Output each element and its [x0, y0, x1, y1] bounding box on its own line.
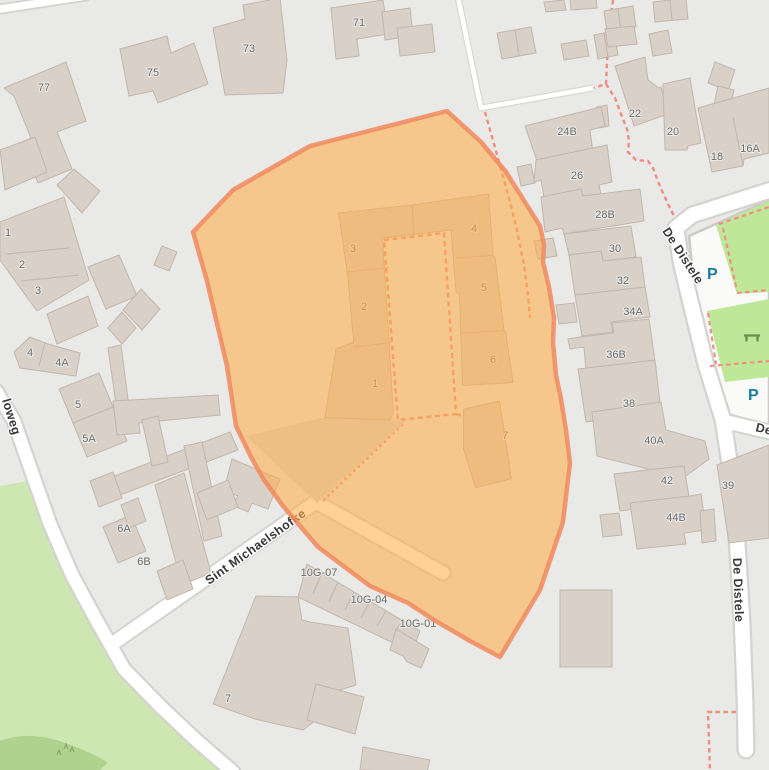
svg-text:20: 20 — [667, 126, 679, 138]
svg-text:3: 3 — [35, 285, 41, 297]
svg-text:10G-04: 10G-04 — [351, 594, 388, 606]
svg-text:6A: 6A — [117, 523, 131, 535]
svg-text:6B: 6B — [137, 556, 150, 568]
svg-text:75: 75 — [147, 67, 159, 79]
svg-text:73: 73 — [243, 43, 255, 55]
svg-text:18: 18 — [711, 151, 723, 163]
svg-text:P: P — [707, 266, 718, 283]
svg-text:22: 22 — [629, 108, 641, 120]
svg-text:39: 39 — [722, 480, 734, 492]
svg-text:24B: 24B — [557, 126, 577, 138]
svg-text:4: 4 — [27, 347, 33, 359]
svg-text:2: 2 — [19, 259, 25, 271]
svg-text:1: 1 — [5, 227, 11, 239]
svg-text:34A: 34A — [623, 306, 643, 318]
svg-text:7: 7 — [225, 693, 231, 705]
svg-text:26: 26 — [571, 170, 583, 182]
svg-text:P: P — [748, 387, 759, 404]
svg-text:16A: 16A — [740, 143, 760, 155]
svg-text:71: 71 — [353, 17, 365, 29]
svg-text:28B: 28B — [595, 209, 615, 221]
svg-text:36B: 36B — [606, 349, 626, 361]
svg-text:77: 77 — [38, 82, 50, 94]
svg-text:De Distele: De Distele — [730, 558, 746, 623]
svg-text:38: 38 — [623, 398, 635, 410]
svg-text:5A: 5A — [82, 433, 96, 445]
svg-text:4A: 4A — [55, 357, 69, 369]
svg-text:44B: 44B — [666, 512, 686, 524]
svg-text:32: 32 — [617, 275, 629, 287]
svg-text:30: 30 — [609, 243, 621, 255]
svg-text:10G-07: 10G-07 — [301, 567, 338, 579]
svg-text:40A: 40A — [644, 435, 664, 447]
svg-text:42: 42 — [661, 475, 673, 487]
svg-text:5: 5 — [75, 399, 81, 411]
